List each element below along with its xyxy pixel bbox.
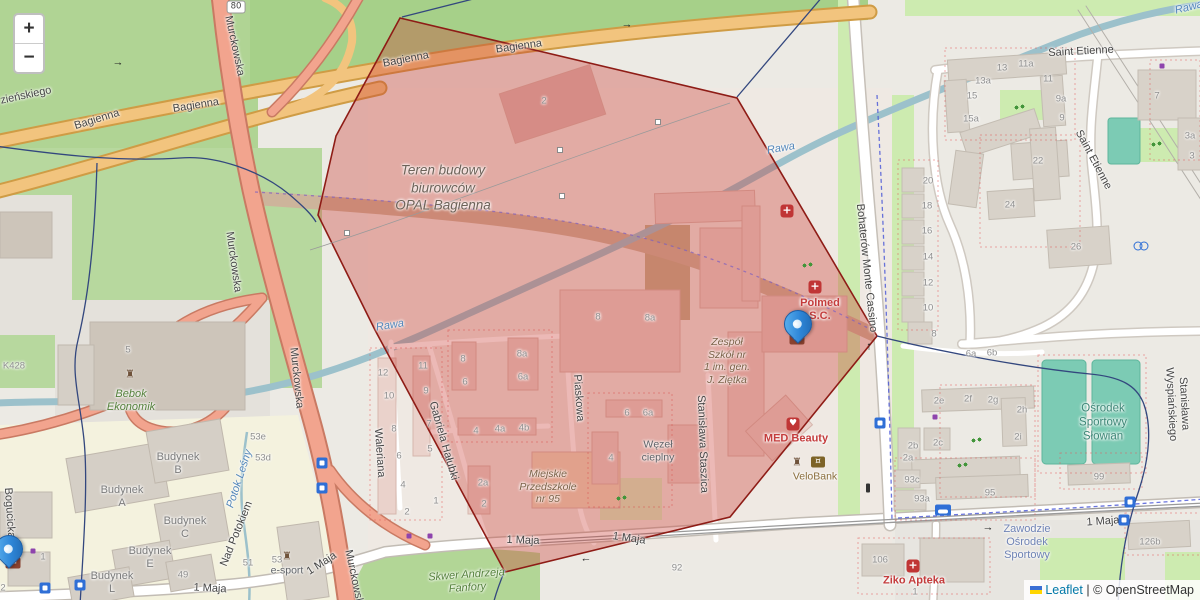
leaflet-link[interactable]: Leaflet: [1045, 583, 1083, 597]
ukraine-flag-icon: [1030, 586, 1042, 594]
attribution-separator: |: [1083, 583, 1093, 597]
map-canvas[interactable]: [0, 0, 1200, 600]
zoom-out-button[interactable]: −: [15, 44, 43, 72]
openstreetmap-link[interactable]: © OpenStreetMap: [1093, 583, 1194, 597]
zoom-in-button[interactable]: +: [15, 15, 43, 44]
zoom-control: + −: [13, 13, 45, 74]
attribution-bar: Leaflet | © OpenStreetMap: [1024, 580, 1200, 600]
map-viewport[interactable]: BagiennaBagiennaBagiennaBagiennazieńskie…: [0, 0, 1200, 600]
